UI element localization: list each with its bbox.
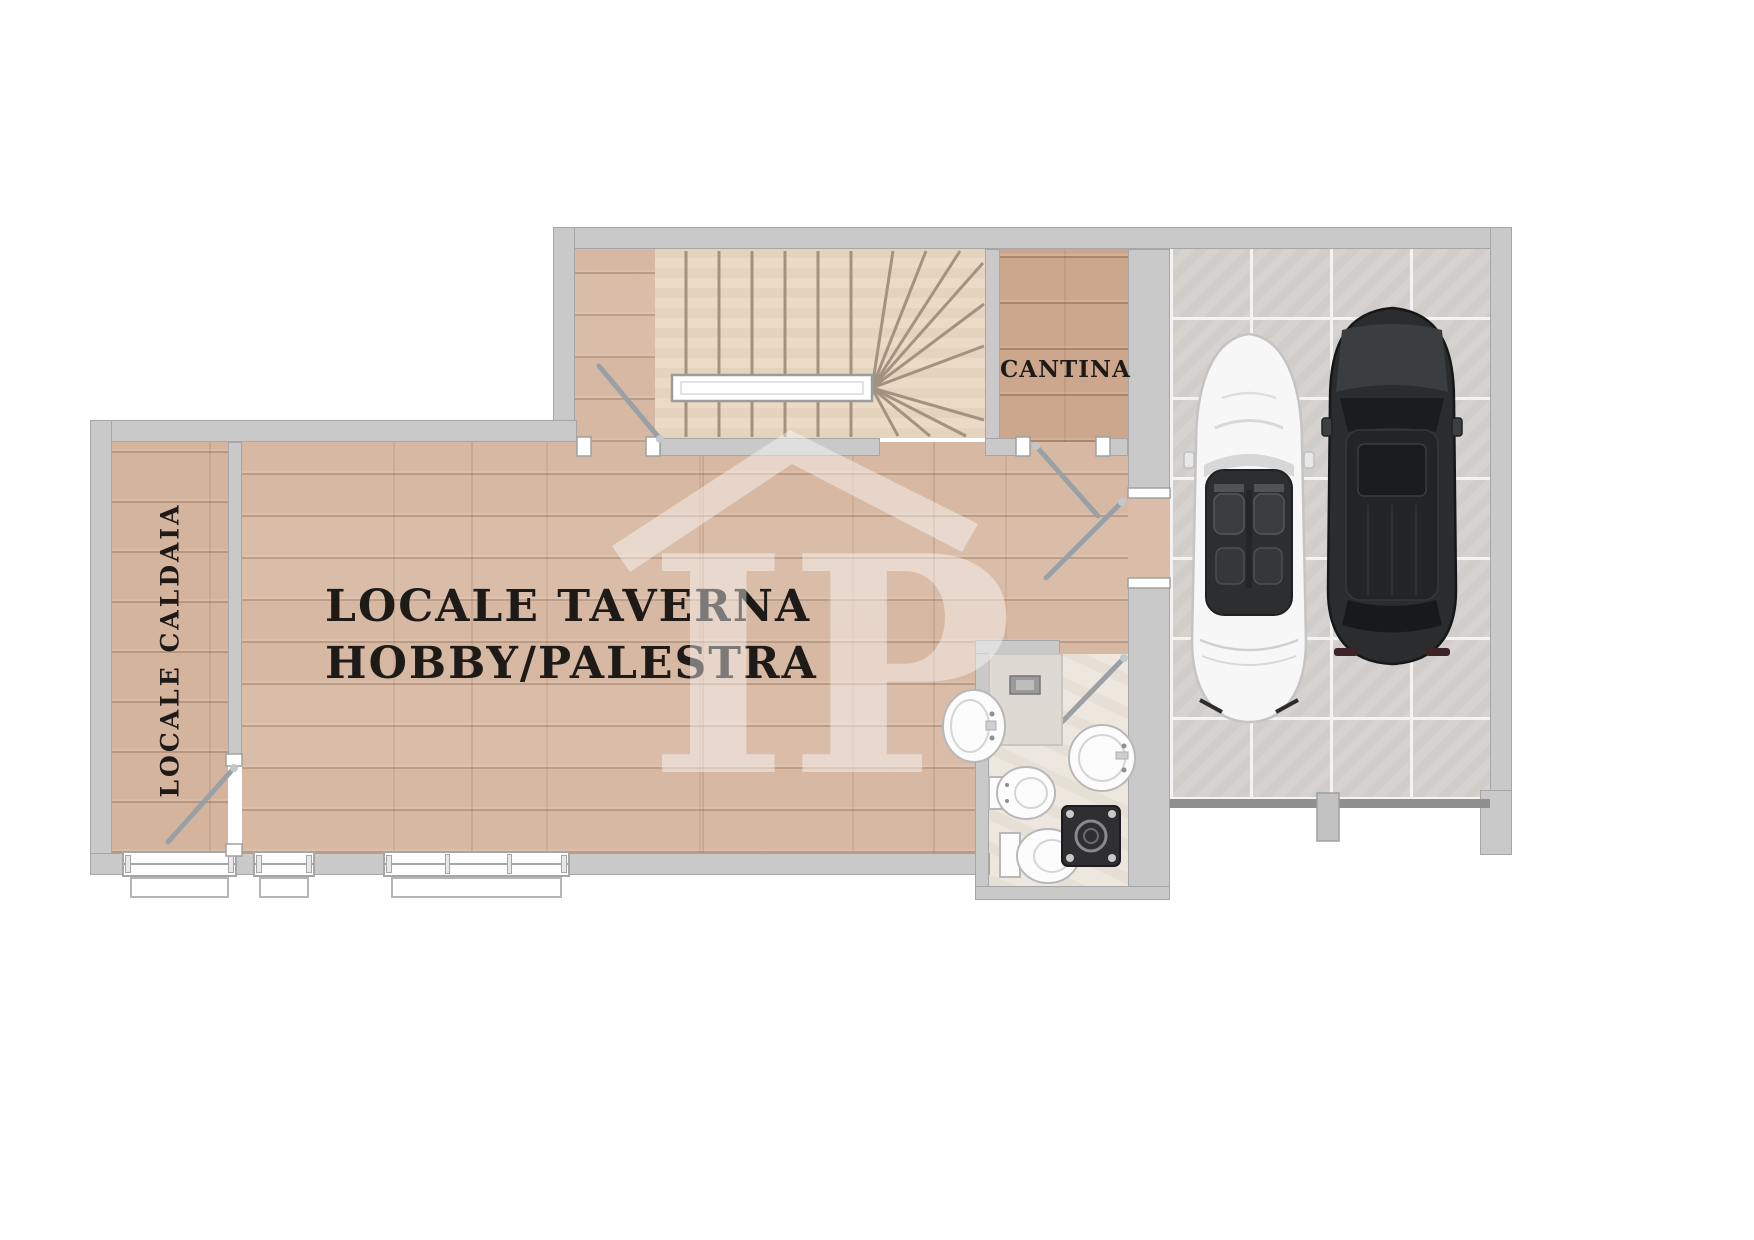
window-2-sill [259, 877, 309, 898]
window-jamb [228, 855, 234, 873]
bathroom-floor [989, 654, 1128, 886]
label-caldaia: LOCALE CALDAIA [156, 502, 185, 797]
wall-stairs-cantina [985, 249, 1000, 442]
wall-upper-left [553, 227, 575, 442]
window-3-sill [391, 877, 562, 898]
label-taverna-line1: LOCALE TAVERNA [325, 578, 818, 635]
wall-caldaia-divider [228, 442, 242, 765]
wall-left [90, 420, 112, 875]
garage-door [1170, 793, 1490, 841]
wall-right-foot [1480, 790, 1512, 855]
wall-top [553, 227, 1512, 249]
window-mullion [445, 854, 450, 874]
window-3 [383, 851, 570, 877]
window-1-sill [130, 877, 229, 898]
window-jamb [386, 855, 392, 873]
window-jamb [306, 855, 312, 873]
label-taverna: LOCALE TAVERNA HOBBY/PALESTRA [325, 578, 818, 692]
garage-floor [1170, 249, 1490, 800]
wall-below-cantina-b [1096, 438, 1128, 456]
wall-garage-left [1128, 249, 1170, 900]
wall-bath-top [975, 640, 1060, 654]
window-glass-line [124, 863, 235, 865]
stairs-entry-floor [575, 249, 655, 442]
window-2 [253, 851, 315, 877]
window-glass-line [385, 863, 568, 865]
floor-plan: LOCALE TAVERNA HOBBY/PALESTRA CANTINA LO… [0, 0, 1754, 1240]
wall-bath-bottom [975, 886, 1170, 900]
wall-below-cantina-a [985, 438, 1030, 456]
label-cantina: CANTINA [1000, 356, 1128, 383]
window-glass-line [255, 863, 313, 865]
wall-bath-left [975, 640, 989, 900]
window-jamb [561, 855, 567, 873]
wall-right [1490, 227, 1512, 855]
room-cantina-floor [1000, 249, 1128, 442]
window-jamb [256, 855, 262, 873]
staircase-floor [655, 249, 985, 438]
window-jamb [125, 855, 131, 873]
window-1 [122, 851, 237, 877]
wall-west-top [90, 420, 577, 442]
window-mullion [507, 854, 512, 874]
wall-below-stairs [660, 438, 880, 456]
label-taverna-line2: HOBBY/PALESTRA [325, 635, 818, 692]
